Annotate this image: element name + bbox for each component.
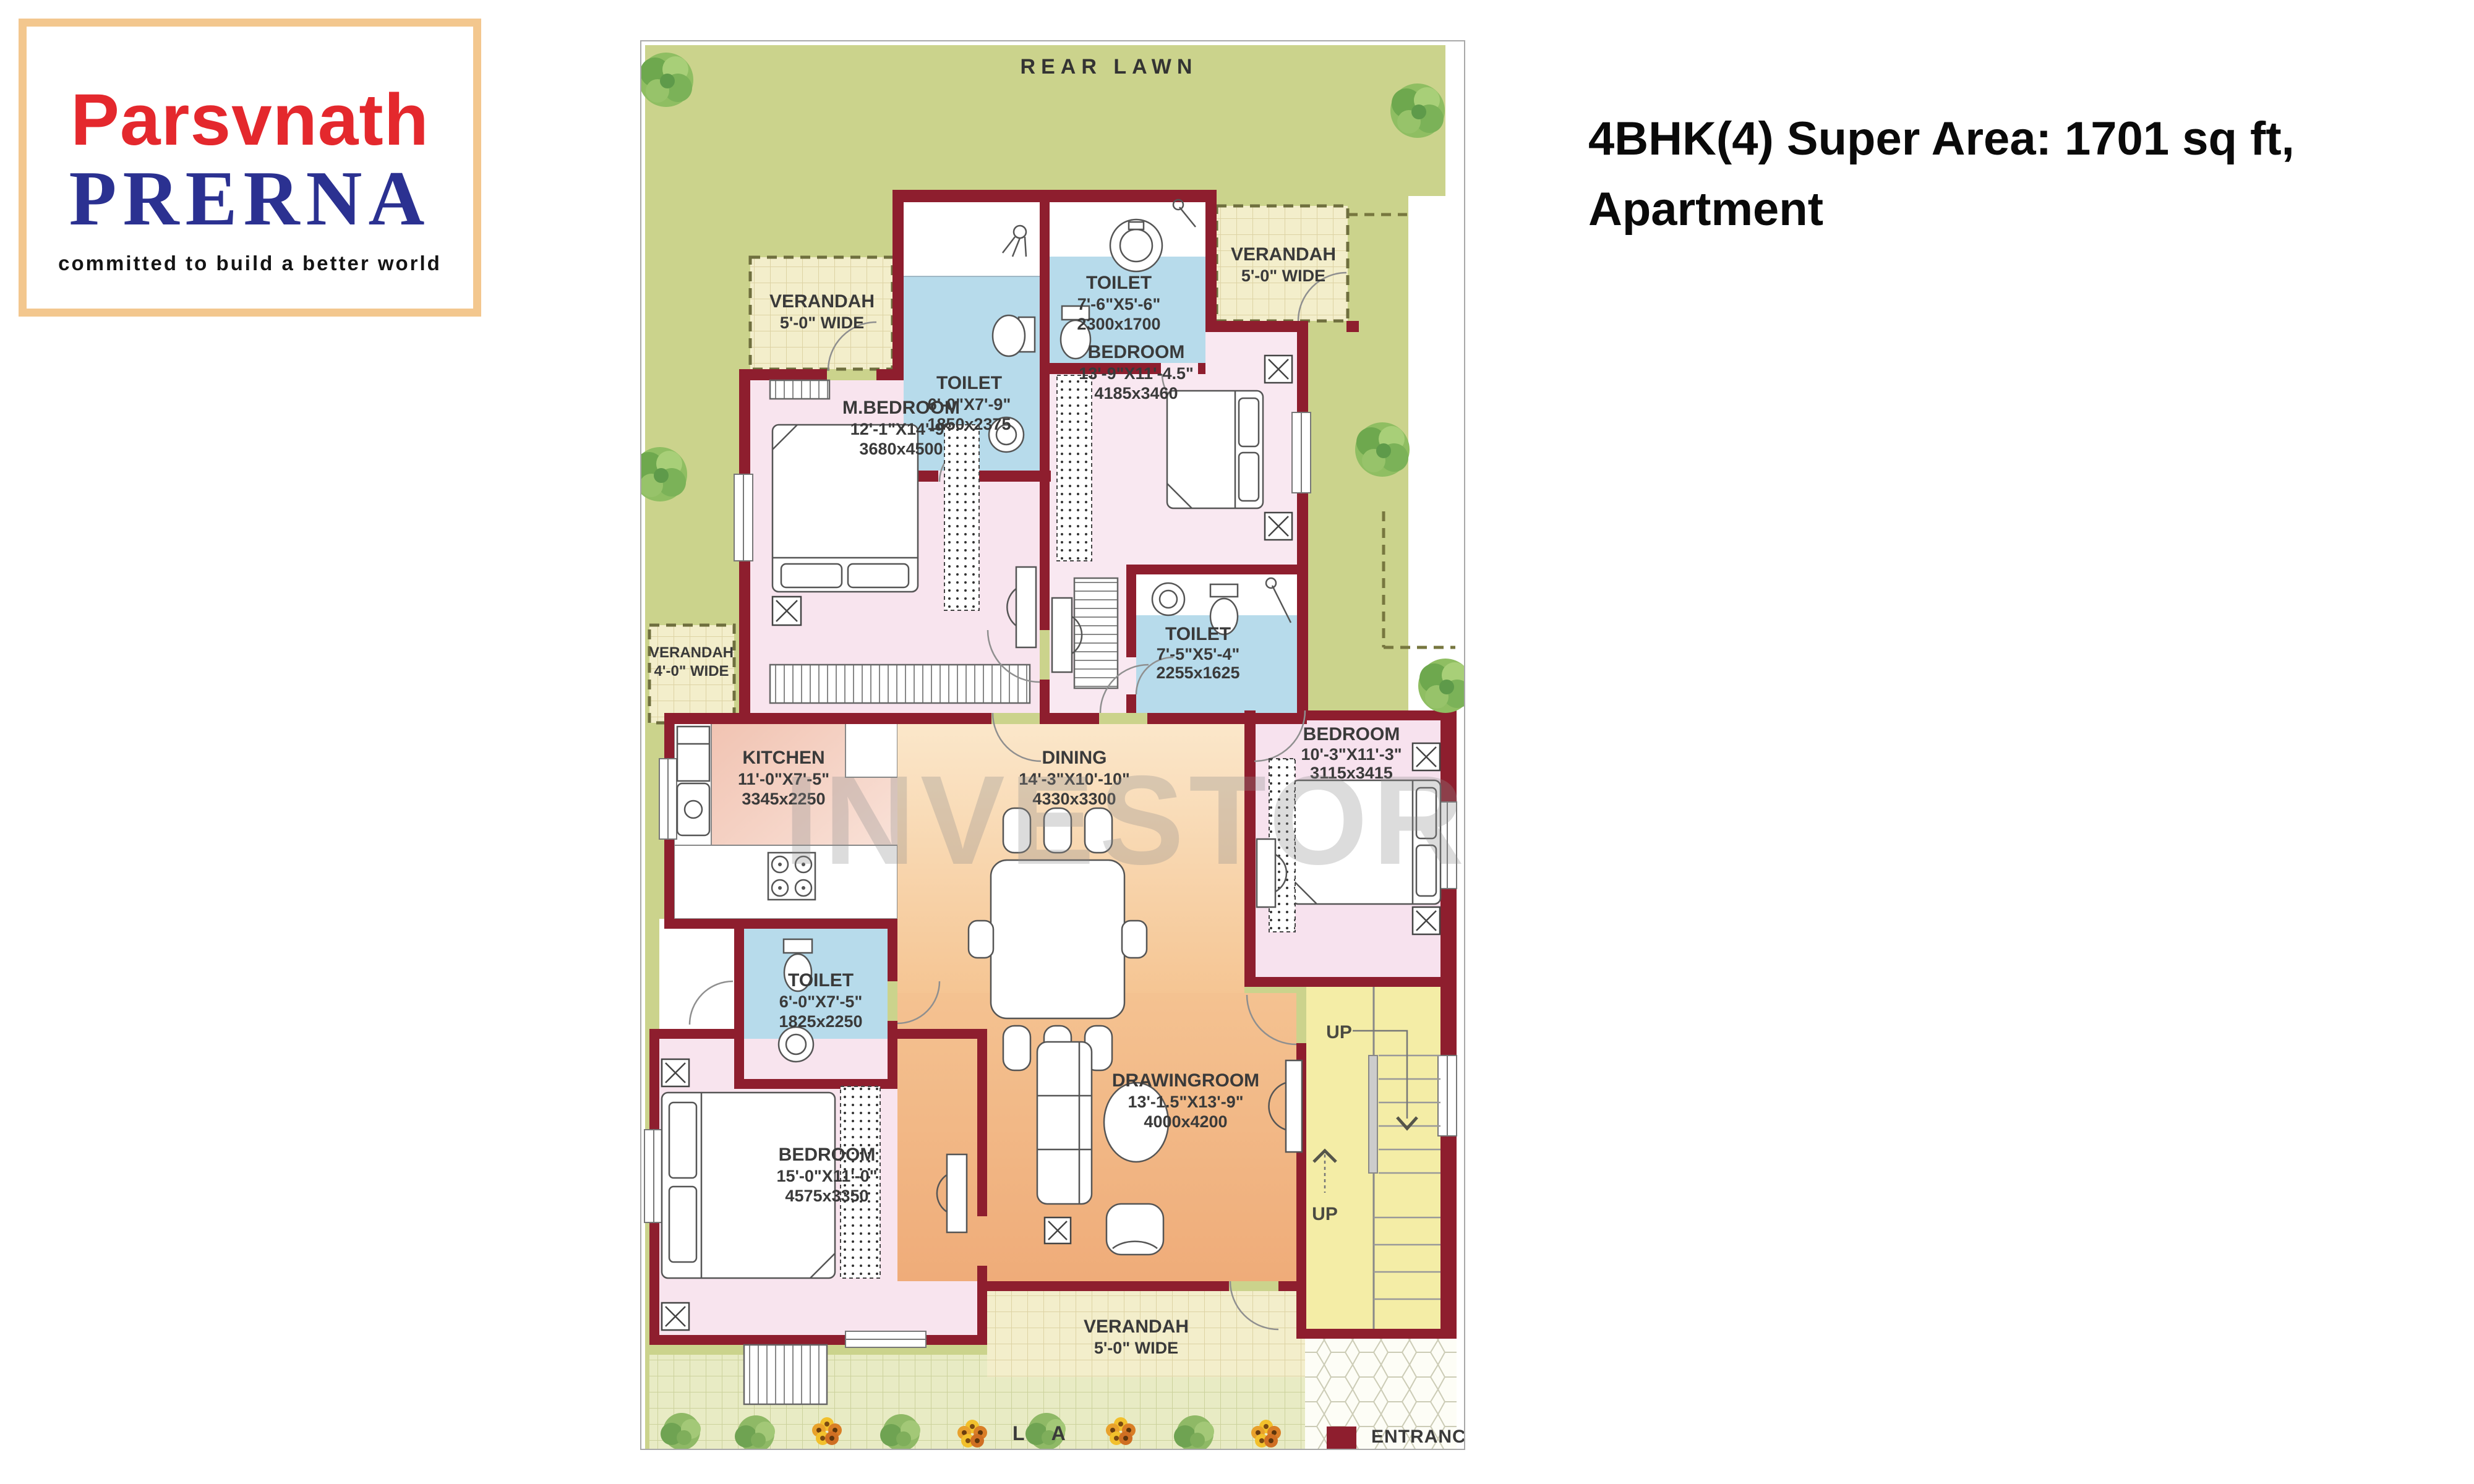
room-label-name: TOILET [788, 970, 854, 991]
room-label-dims: 7'-5"X5'-4" [1157, 645, 1240, 663]
floor-plan: UP UP REAR LAWN VERANDAH 5'-0" WIDE TOIL… [640, 40, 1465, 1450]
room-label-dims: 5'-0" WIDE [780, 313, 864, 332]
room-label-metric: 2300x1700 [1077, 315, 1160, 333]
room-label-name: VERANDAH [769, 291, 875, 312]
room-label-dims: 12'-1"X14'-9" [850, 420, 952, 438]
floor-plan-svg: UP UP REAR LAWN VERANDAH 5'-0" WIDE TOIL… [641, 41, 1464, 1449]
room-label-metric: 2255x1625 [1156, 663, 1239, 682]
room-label-dims: 5'-0" WIDE [1241, 267, 1325, 285]
room-label-name: VERANDAH [1231, 244, 1336, 265]
room-label-name: DRAWINGROOM [1112, 1070, 1259, 1091]
plan-title-line2: Apartment [1588, 174, 2454, 245]
room-label-dims: 4'-0" WIDE [654, 663, 729, 680]
room-label-dims: 5'-0" WIDE [1094, 1339, 1178, 1357]
logo-tagline-text: committed to build a better world [27, 252, 473, 275]
parsvnath-prerna-logo: Parsvnath PRERNA committed to build a be… [19, 19, 481, 317]
room-label-dims: 7'-6"X5'-6" [1077, 295, 1161, 313]
room-label-name: TOILET [1086, 273, 1152, 293]
room-label-metric: 3680x4500 [859, 440, 943, 458]
room-label-metric: 4575x3350 [785, 1187, 868, 1205]
stairs-up-label-1: UP [1326, 1022, 1352, 1043]
room-label-name: M.BEDROOM [842, 398, 960, 418]
room-label-name: BEDROOM [779, 1145, 876, 1165]
logo-brand-text: Parsvnath [27, 83, 473, 156]
room-label-metric: 4000x4200 [1144, 1112, 1227, 1131]
room-label-name: BEDROOM [1088, 342, 1185, 362]
plan-title: 4BHK(4) Super Area: 1701 sq ft, Apartmen… [1588, 104, 2454, 245]
room-label-name: VERANDAH [649, 644, 734, 661]
entrance-label: ENTRANCE [1371, 1426, 1464, 1447]
room-label-metric: 4185x3460 [1094, 384, 1178, 403]
room-label-name: VERANDAH [1084, 1316, 1189, 1337]
lawn-label: L A [1012, 1422, 1077, 1444]
room-label-name: BEDROOM [1303, 724, 1400, 744]
logo-project-text: PRERNA [27, 160, 473, 238]
fridge-icon [677, 727, 709, 781]
room-label-metric: 1825x2250 [779, 1012, 862, 1031]
plan-title-line1: 4BHK(4) Super Area: 1701 sq ft, [1588, 104, 2454, 174]
rear-lawn-label: REAR LAWN [1021, 55, 1198, 79]
watermark-text: INVESTOR MART [784, 749, 1464, 891]
room-label-name: TOILET [1165, 624, 1231, 644]
room-label-dims: 15'-0"X11'-0" [776, 1167, 877, 1185]
room-label-dims: 13'-1.5"X13'-9" [1128, 1093, 1243, 1111]
stairs-up-label-2: UP [1312, 1204, 1338, 1224]
room-label-name: TOILET [936, 373, 1002, 393]
kitchen-sink-icon [677, 783, 709, 835]
room-label-dims: 6'-0"X7'-5" [779, 992, 863, 1011]
room-label-dims: 13'-9"X11'-4.5" [1079, 364, 1194, 383]
